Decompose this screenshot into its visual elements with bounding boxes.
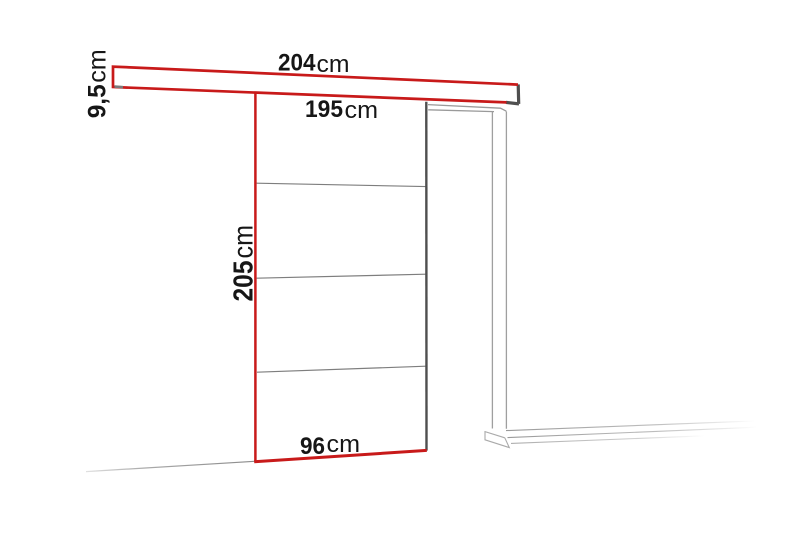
svg-text:96: 96 xyxy=(300,433,325,460)
svg-text:cm: cm xyxy=(317,51,350,78)
svg-text:cm: cm xyxy=(227,225,258,259)
svg-text:cm: cm xyxy=(327,431,361,458)
svg-text:cm: cm xyxy=(84,49,112,83)
svg-text:9,5: 9,5 xyxy=(84,84,112,118)
svg-text:cm: cm xyxy=(345,97,379,124)
svg-text:195: 195 xyxy=(305,96,343,123)
svg-text:205: 205 xyxy=(227,261,258,302)
svg-text:204: 204 xyxy=(278,50,316,77)
